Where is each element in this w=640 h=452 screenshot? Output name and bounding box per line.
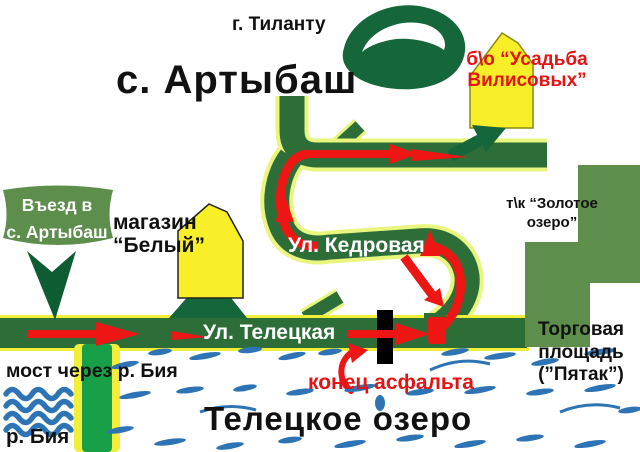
entrance-arrow-icon <box>27 251 76 320</box>
artybash-schematic-map: г. Тиланту с. Артыбаш б\о “Усадьба Вилис… <box>0 0 640 452</box>
lake-label: Телецкое озеро <box>204 401 472 437</box>
route-arrow-west-shaft <box>28 330 98 338</box>
kedrovaya-street-label: Ул. Кедровая <box>288 234 425 257</box>
entrance-label-line1: Въезд в <box>0 192 114 219</box>
usadba-label-line2: Вилисовых” <box>448 70 606 91</box>
market-label-line3: (”Пятак”) <box>522 364 640 387</box>
market-label-line1: Торговая <box>522 319 640 342</box>
mountain-tilantu-icon <box>343 5 465 89</box>
entrance-label-line2: с. Артыбаш <box>0 219 114 246</box>
golden-lake-label: т\к “Золотое озеро” <box>492 194 612 232</box>
mountain-label: г. Тиланту <box>232 15 326 36</box>
usadba-label-line1: б\о “Усадьба <box>448 49 606 70</box>
shop-label-line2: “Белый” <box>113 234 205 257</box>
wave-1 <box>6 390 71 399</box>
entrance-badge: Въезд в с. Артыбаш <box>0 192 114 246</box>
river-label: р. Бия <box>6 426 69 449</box>
route-arrow-east-shaft <box>348 330 398 338</box>
bridge-label: мост через р. Бия <box>6 361 178 382</box>
golden-lake-label-line1: т\к “Золотое <box>492 194 612 213</box>
market-square-label: Торговая площадь (”Пятак”) <box>522 319 640 387</box>
wave-3 <box>6 414 71 423</box>
teletskaya-street-label: Ул. Телецкая <box>203 321 335 344</box>
asphalt-end-label: конец асфальта <box>308 371 474 394</box>
wave-2 <box>6 402 71 411</box>
market-label-line2: площадь <box>522 342 640 365</box>
shop-label: магазин “Белый” <box>113 211 205 257</box>
usadba-label: б\о “Усадьба Вилисовых” <box>448 49 606 91</box>
shop-label-line1: магазин <box>113 211 205 234</box>
road-stub-south-fill <box>305 297 340 318</box>
golden-lake-label-line2: озеро” <box>492 213 612 232</box>
route-hook-diagonal <box>404 257 433 296</box>
mountain-outer <box>343 5 465 89</box>
village-title: с. Артыбаш <box>116 58 357 102</box>
